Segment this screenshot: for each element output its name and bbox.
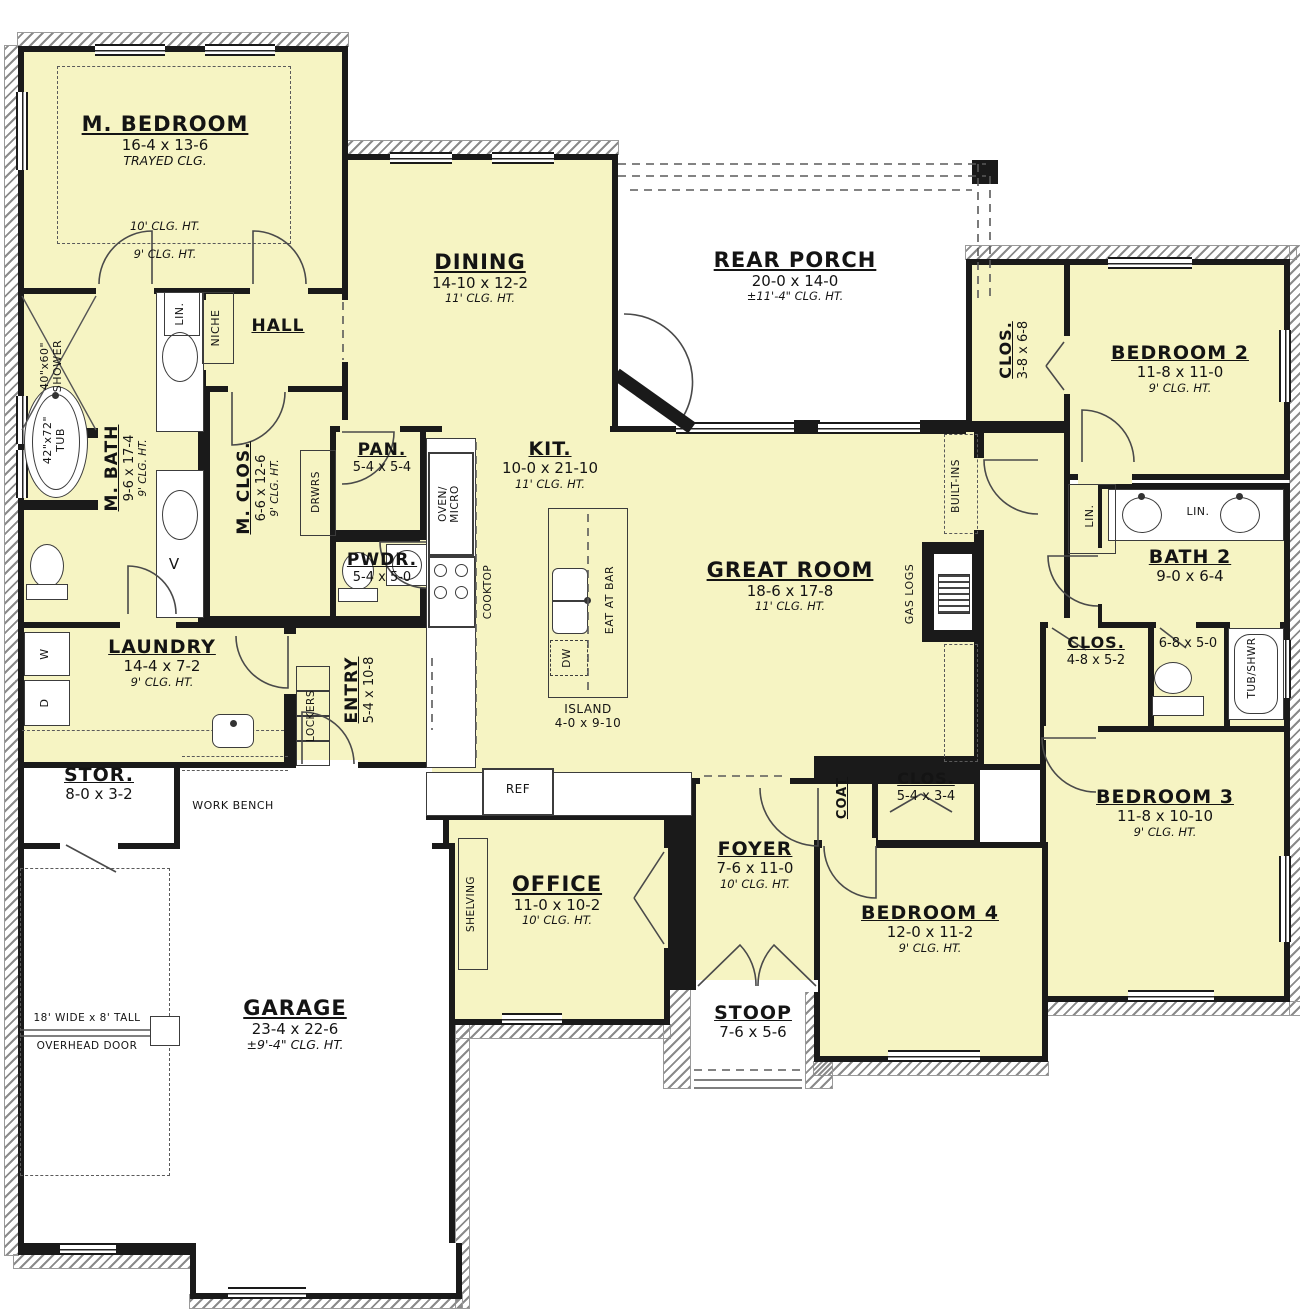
label-dishwasher: DW: [561, 638, 577, 678]
label-shelving: SHELVING: [465, 854, 481, 954]
label-kitchen: KIT. 10-0 x 21-10 11' CLG. HT.: [470, 438, 630, 492]
label-m-bedroom-clg9: 9' CLG. HT.: [55, 248, 275, 262]
label-linen-bath2: LIN.: [1178, 506, 1218, 519]
label-powder: PWDR. 5-4 x 5-0: [334, 550, 430, 585]
label-clos-bedroom2: CLOS. 3-8 x 6-8: [997, 295, 1037, 405]
label-bath2: BATH 2 9-0 x 6-4: [1110, 546, 1270, 586]
label-pantry: PAN. 5-4 x 5-4: [336, 440, 428, 475]
label-work-bench: WORK BENCH: [178, 800, 288, 813]
label-drawers: DRWRS: [310, 457, 326, 527]
label-rear-porch: REAR PORCH 20-0 x 14-0 ±11'-4" CLG. HT.: [630, 248, 960, 304]
floor-plan: M. BEDROOM 16-4 x 13-6 TRAYED CLG. 10' C…: [0, 0, 1300, 1309]
label-entry: ENTRY 5-4 x 10-8: [342, 610, 382, 770]
label-oven-micro: OVEN/ MICRO: [437, 464, 465, 544]
label-lockers: LOCKERS: [305, 671, 321, 761]
label-vanity: V: [162, 556, 186, 574]
label-laundry: LAUNDRY 14-4 x 7-2 9' CLG. HT.: [72, 636, 252, 690]
label-cooktop: COOKTOP: [482, 547, 498, 637]
label-gas-logs: GAS LOGS: [904, 549, 920, 639]
label-hall: HALL: [238, 316, 318, 336]
label-island: ISLAND 4-0 x 9-10: [532, 702, 644, 730]
label-washer: W: [39, 634, 55, 674]
label-storage: STOR. 8-0 x 3-2: [26, 764, 172, 804]
label-coat: COAT: [835, 760, 855, 836]
label-overhead-door-1: 18' WIDE x 8' TALL: [28, 1012, 146, 1024]
label-office: OFFICE 11-0 x 10-2 10' CLG. HT.: [462, 872, 652, 928]
label-garage: GARAGE 23-4 x 22-6 ±9'-4" CLG. HT.: [190, 996, 400, 1053]
label-m-bedroom: M. BEDROOM 16-4 x 13-6 TRAYED CLG.: [55, 112, 275, 169]
label-clos-bedroom4: CLOS. 5-4 x 3-4: [876, 770, 976, 804]
label-m-clos: M. CLOS. 6-6 x 12-6 9' CLG. HT.: [234, 403, 282, 573]
label-m-bedroom-clg10: 10' CLG. HT.: [55, 220, 275, 234]
label-bedroom2: BEDROOM 2 11-8 x 11-0 9' CLG. HT.: [1070, 342, 1290, 396]
label-niche: NICHE: [210, 293, 226, 363]
label-stoop: STOOP 7-6 x 5-6: [690, 1002, 816, 1042]
label-dining: DINING 14-10 x 12-2 11' CLG. HT.: [360, 250, 600, 306]
label-overhead-door-2: OVERHEAD DOOR: [28, 1040, 146, 1052]
label-built-ins: BUILT-INS: [950, 436, 966, 536]
label-eat-at-bar: EAT AT BAR: [604, 550, 620, 650]
label-linen-hall2: LIN.: [1084, 491, 1100, 541]
label-shower: 40"x60" SHOWER: [39, 323, 71, 409]
label-great-room: GREAT ROOM 18-6 x 17-8 11' CLG. HT.: [680, 558, 900, 614]
label-fridge: REF: [482, 782, 554, 796]
label-toilet-room: 6-8 x 5-0: [1146, 636, 1230, 651]
label-bedroom3: BEDROOM 3 11-8 x 10-10 9' CLG. HT.: [1055, 786, 1275, 840]
label-linen-hall: LIN.: [174, 289, 190, 339]
label-tub: 42"x72" TUB: [42, 402, 70, 478]
label-bedroom4: BEDROOM 4 12-0 x 11-2 9' CLG. HT.: [815, 902, 1045, 956]
label-foyer: FOYER 7-6 x 11-0 10' CLG. HT.: [692, 838, 818, 892]
label-clos-hall: CLOS. 4-8 x 5-2: [1046, 634, 1146, 668]
label-dryer: D: [39, 683, 55, 723]
label-m-bath: M. BATH 9-6 x 17-4 9' CLG. HT.: [102, 383, 150, 553]
label-tub-shower: TUB/SHWR: [1246, 623, 1262, 713]
